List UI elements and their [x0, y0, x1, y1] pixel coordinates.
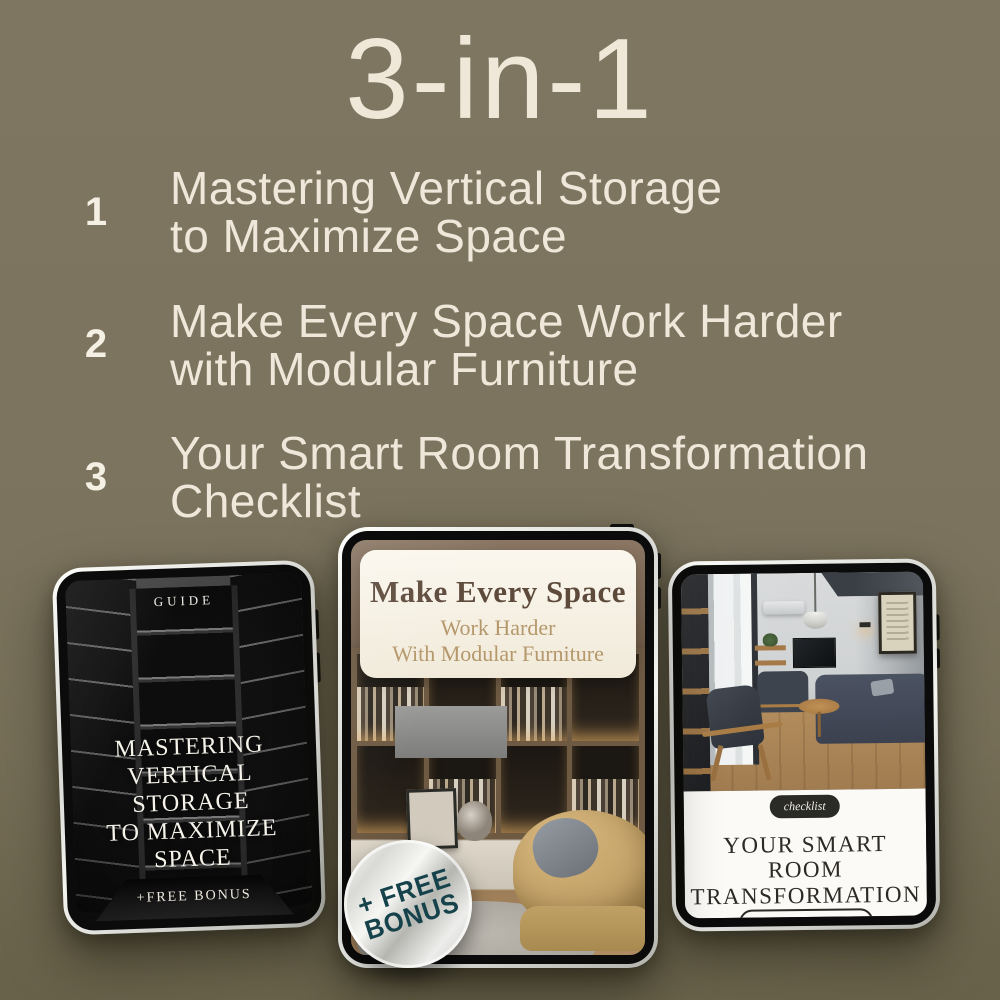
badge-text: + FREE BONUS — [354, 864, 463, 944]
page-title: 3-in-1 — [0, 14, 1000, 145]
middle-subheading-1: Work Harder — [360, 615, 636, 641]
wall-tv — [793, 638, 836, 669]
item-text-line2: Checklist — [170, 477, 868, 525]
vase — [457, 801, 492, 840]
front-armchair-leg — [757, 744, 771, 780]
free-bonus-badge: + FREE BONUS — [344, 840, 472, 968]
right-cover: checklist YOUR SMART ROOM TRANSFORMATION… — [681, 572, 927, 919]
item-text-line1: Mastering Vertical Storage — [170, 164, 723, 212]
left-cover: GUIDE MASTERING VERTICAL STORAGE TO MAXI… — [65, 573, 313, 922]
tablet-frame: GUIDE MASTERING VERTICAL STORAGE TO MAXI… — [52, 560, 327, 936]
air-conditioner — [764, 601, 805, 615]
free-bonus-pill: +FREE BONUS — [739, 908, 873, 918]
living-room-photo — [681, 572, 926, 792]
item-text-line1: Your Smart Room Transformation — [170, 429, 868, 477]
middle-heading: Make Every Space — [360, 574, 636, 610]
list-item: 3 Your Smart Room Transformation Checkli… — [62, 429, 868, 526]
pendant-cord — [814, 573, 817, 614]
tablet-middle-mockup: Make Every Space Work Harder With Modula… — [338, 527, 658, 968]
item-number: 3 — [62, 455, 130, 500]
feature-list: 1 Mastering Vertical Storage to Maximize… — [62, 164, 868, 526]
item-text-line2: to Maximize Space — [170, 212, 723, 260]
pendant-lamp — [804, 612, 828, 630]
front-armchair — [704, 686, 780, 778]
framed-art — [878, 591, 916, 654]
promo-graphic: 3-in-1 1 Mastering Vertical Storage to M… — [0, 0, 1000, 1000]
tablet-bezel: Make Every Space Work Harder With Modula… — [342, 531, 654, 964]
tablet-bezel: checklist YOUR SMART ROOM TRANSFORMATION… — [672, 562, 936, 927]
tablet-frame: checklist YOUR SMART ROOM TRANSFORMATION… — [668, 558, 941, 931]
right-title-panel: checklist YOUR SMART ROOM TRANSFORMATION… — [684, 788, 928, 918]
front-armchair-leg — [710, 745, 723, 781]
middle-subheading-2: With Modular Furniture — [360, 641, 636, 667]
armchair-seat — [520, 906, 645, 951]
wall-shelf — [755, 660, 787, 666]
tablet-bezel: GUIDE MASTERING VERTICAL STORAGE TO MAXI… — [56, 564, 322, 932]
left-cover-title: MASTERING VERTICAL STORAGE TO MAXIMIZE S… — [71, 729, 312, 878]
right-title-line-1: YOUR SMART ROOM — [684, 830, 927, 884]
item-number: 1 — [62, 190, 130, 235]
item-text-line2: with Modular Furniture — [170, 345, 843, 393]
right-cover-title: YOUR SMART ROOM TRANSFORMATION — [684, 830, 927, 910]
item-text: Your Smart Room Transformation Checklist — [130, 429, 868, 526]
item-text: Make Every Space Work Harder with Modula… — [130, 297, 843, 394]
armchair — [513, 810, 645, 951]
list-item: 1 Mastering Vertical Storage to Maximize… — [62, 164, 868, 261]
middle-title-card: Make Every Space Work Harder With Modula… — [360, 550, 636, 678]
list-item: 2 Make Every Space Work Harder with Modu… — [62, 297, 868, 394]
cabinet-panel — [395, 706, 507, 758]
item-text: Mastering Vertical Storage to Maximize S… — [130, 164, 723, 261]
checklist-tag: checklist — [770, 794, 840, 818]
item-number: 2 — [62, 322, 130, 367]
tablet-right-mockup: checklist YOUR SMART ROOM TRANSFORMATION… — [668, 558, 941, 931]
front-armchair-back — [706, 684, 765, 750]
tablet-left-mockup: GUIDE MASTERING VERTICAL STORAGE TO MAXI… — [52, 560, 327, 936]
right-title-line-2: TRANSFORMATION — [685, 882, 927, 911]
potted-plant — [763, 633, 778, 646]
item-text-line1: Make Every Space Work Harder — [170, 297, 843, 345]
tablet-frame: Make Every Space Work Harder With Modula… — [338, 527, 658, 968]
wall-sconce — [859, 622, 870, 628]
